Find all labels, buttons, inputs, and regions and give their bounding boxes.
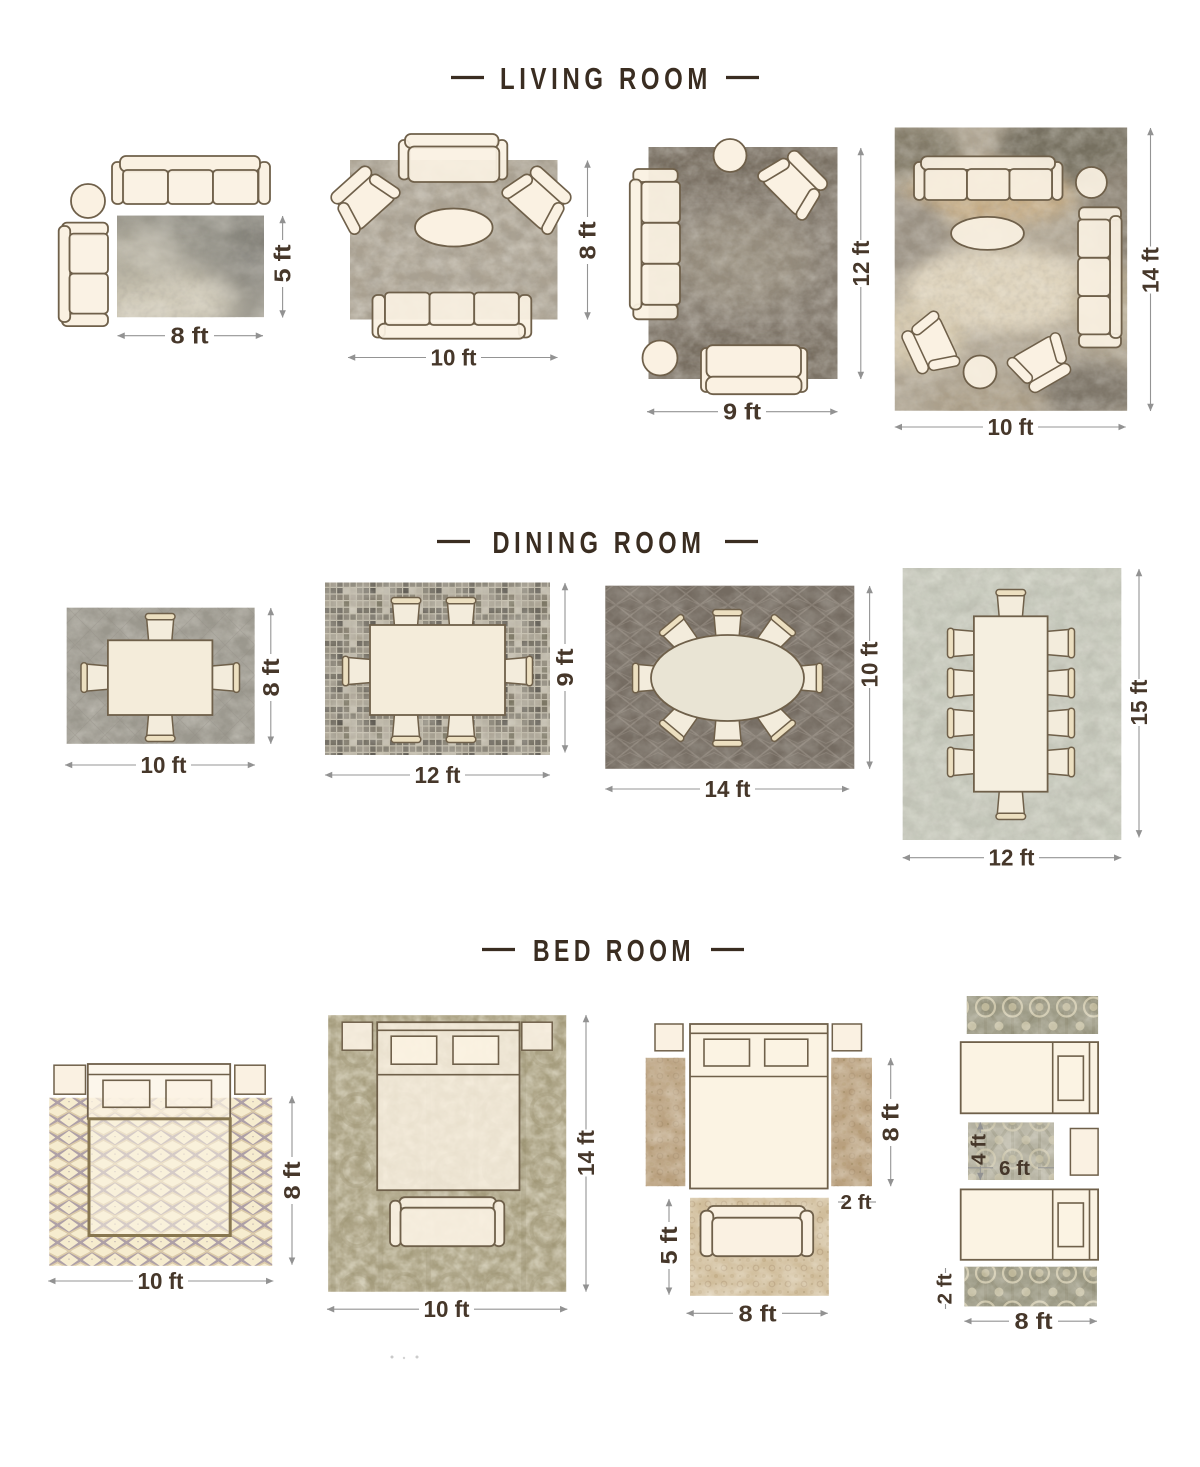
svg-text:2 ft: 2 ft [935, 1273, 957, 1304]
svg-text:10 ft: 10 ft [138, 1268, 184, 1294]
svg-text:8 ft: 8 ft [258, 658, 284, 696]
svg-text:12 ft: 12 ft [415, 762, 461, 788]
svg-text:10 ft: 10 ft [431, 345, 477, 371]
svg-text:5 ft: 5 ft [270, 244, 296, 282]
svg-text:9 ft: 9 ft [552, 648, 578, 686]
svg-text:LIVING ROOM: LIVING ROOM [500, 61, 712, 96]
svg-text:8 ft: 8 ft [575, 221, 601, 259]
svg-text:8 ft: 8 ft [878, 1103, 904, 1141]
svg-text:14 ft: 14 ft [1138, 247, 1164, 293]
svg-text:BED ROOM: BED ROOM [533, 933, 695, 968]
svg-text:2 ft: 2 ft [841, 1192, 872, 1214]
svg-text:14 ft: 14 ft [573, 1130, 599, 1176]
svg-text:10 ft: 10 ft [141, 752, 187, 778]
svg-text:12 ft: 12 ft [989, 845, 1035, 871]
svg-text:14 ft: 14 ft [705, 776, 751, 802]
svg-text:12 ft: 12 ft [848, 240, 874, 286]
svg-text:15 ft: 15 ft [1126, 679, 1152, 725]
svg-text:10 ft: 10 ft [857, 641, 883, 687]
svg-text:8 ft: 8 ft [171, 323, 209, 349]
svg-text:9 ft: 9 ft [723, 399, 761, 425]
svg-text:DINING ROOM: DINING ROOM [493, 525, 706, 560]
svg-text:5 ft: 5 ft [656, 1226, 682, 1264]
svg-text:6 ft: 6 ft [999, 1158, 1030, 1180]
svg-text:10 ft: 10 ft [988, 414, 1034, 440]
svg-text:8 ft: 8 ft [279, 1161, 305, 1199]
svg-text:4 ft: 4 ft [968, 1134, 990, 1165]
svg-text:8 ft: 8 ft [1015, 1308, 1053, 1334]
svg-text:8 ft: 8 ft [739, 1300, 777, 1326]
svg-text:10 ft: 10 ft [424, 1296, 470, 1322]
